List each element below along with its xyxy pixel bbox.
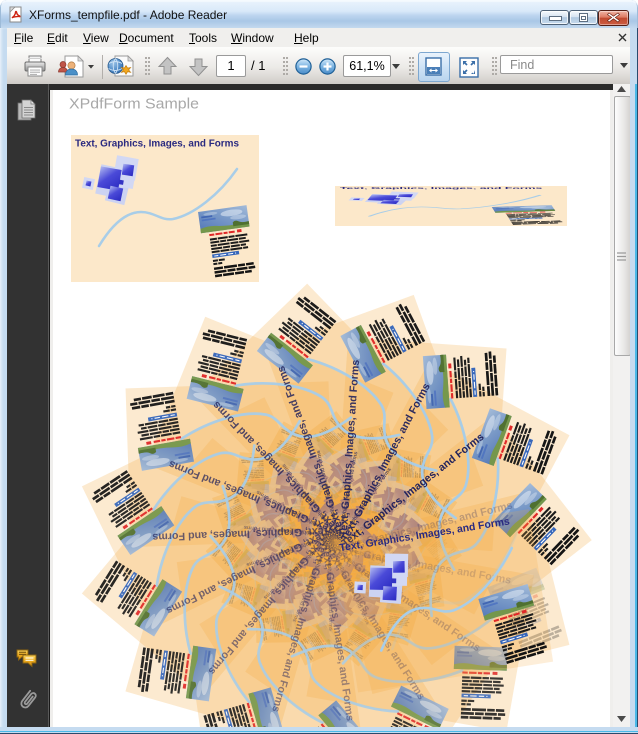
svg-text:XPdfForm Sample: XPdfForm Sample <box>69 96 199 113</box>
